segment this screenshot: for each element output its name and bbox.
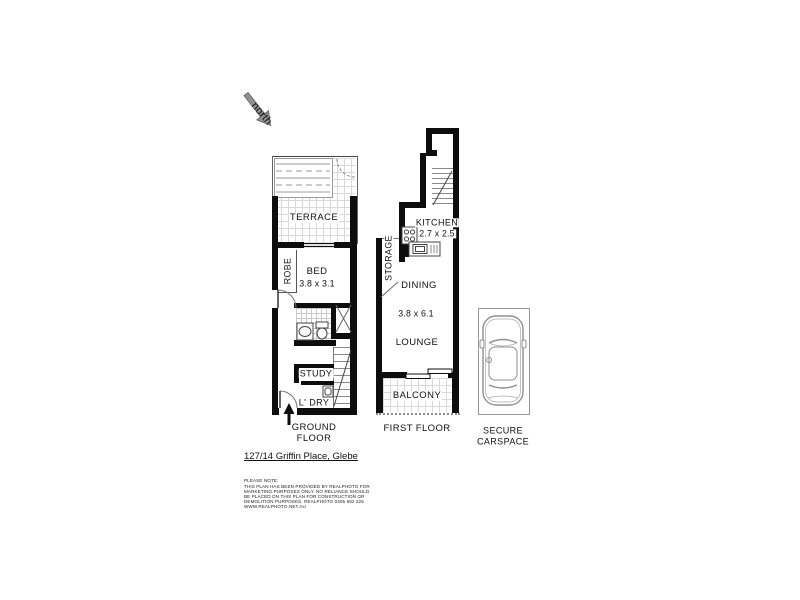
kitchen-dims-label: 2.7 x 2.5 [418,229,456,238]
carspace-caption-1: SECURE [482,426,524,435]
bathroom-tiles [296,308,331,340]
laundry-label: L' DRY [298,398,330,407]
gf-bed-bath-wall [294,303,352,308]
balcony-label: BALCONY [392,391,442,401]
lounge-label: LOUNGE [395,338,440,348]
gf-bed-door-gap [272,290,278,308]
bed-label: BED [306,267,329,277]
ground-floor-caption-2: FLOOR [296,434,333,444]
living-dims-label: 3.8 x 6.1 [397,309,435,318]
pergola-area [274,158,333,198]
ff-stairs [432,168,453,207]
ff-balcony-left-wall [377,378,383,413]
ground-floor-caption-1: GROUND [291,423,338,433]
dining-label: DINING [400,281,438,291]
gf-entry-door-gap [279,408,297,415]
void-cross [336,305,351,332]
study-label: STUDY [299,369,334,378]
balcony-open-edge [376,413,460,416]
gf-terrace-window-gap [304,242,334,248]
ff-bench-wall [399,240,409,257]
carspace-caption-2: CARSPACE [476,437,530,446]
north-label: north [249,100,275,128]
storage-label: STORAGE [384,234,393,282]
linework-overlay [0,0,800,600]
gf-bath-bottom-wall [294,340,336,346]
kitchen-label: KITCHEN [415,218,459,227]
gf-study-bottom-wall [301,381,334,385]
robe-label: ROBE [283,257,292,286]
floor-plan-page: TERRACE ROBE BED 3.8 x 3.1 STUDY L' DRY … [0,0,800,600]
disclaimer-line: WWW.REALPHOTO.NET.AU [244,504,306,509]
laundry-tub-icon [323,386,333,397]
ff-left-wall-notch [426,150,437,156]
kitchen-sink-icon [409,242,440,256]
gf-stairs [333,347,351,408]
entry-door-arc [280,391,297,408]
address-text: 127/14 Griffin Place, Glebe [244,451,358,462]
ff-balcony-right-wall [452,378,459,413]
storage-door-line [381,282,398,297]
ff-left-wall-mid [420,153,426,208]
bed-dims-label: 3.8 x 3.1 [298,279,336,288]
first-floor-caption: FIRST FLOOR [382,424,451,434]
carspace-outline [478,308,530,415]
ff-right-wall [453,128,459,378]
terrace-label: TERRACE [289,213,339,223]
gf-void-bottom-wall [333,333,352,339]
disclaimer-line: PLEASE NOTE: [244,478,278,483]
